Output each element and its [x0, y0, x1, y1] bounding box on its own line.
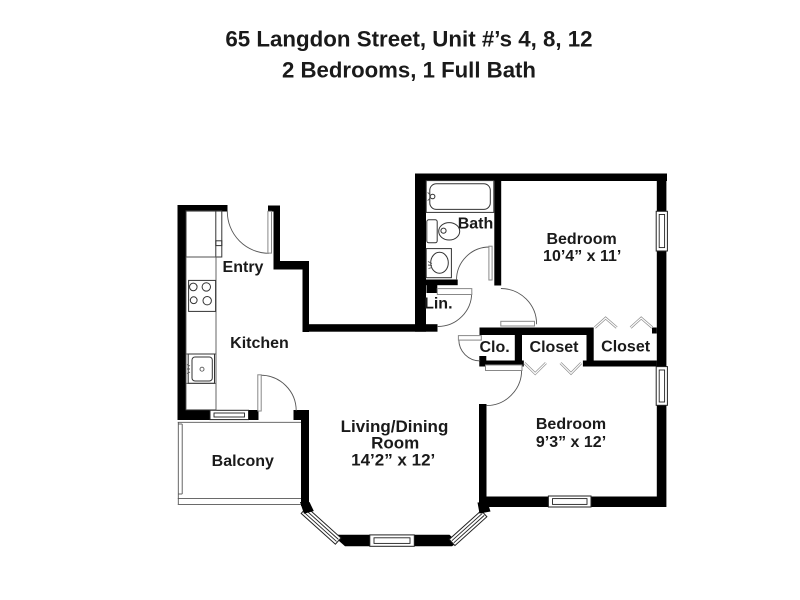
- svg-text:10’4” x 11’: 10’4” x 11’: [543, 248, 621, 265]
- svg-text:Lin.: Lin.: [424, 295, 452, 312]
- svg-text:Clo.: Clo.: [479, 339, 509, 356]
- svg-text:Bedroom: Bedroom: [536, 416, 606, 433]
- svg-text:9’3” x 12’: 9’3” x 12’: [536, 434, 606, 451]
- svg-text:Balcony: Balcony: [212, 453, 274, 470]
- svg-text:Closet: Closet: [530, 339, 580, 356]
- svg-text:65 Langdon Street, Unit #’s 4,: 65 Langdon Street, Unit #’s 4, 8, 12: [225, 27, 592, 52]
- svg-text:Bath: Bath: [458, 216, 494, 233]
- svg-text:2 Bedrooms, 1 Full Bath: 2 Bedrooms, 1 Full Bath: [282, 58, 536, 83]
- svg-text:Closet: Closet: [601, 339, 651, 356]
- svg-text:14’2” x 12’: 14’2” x 12’: [351, 451, 435, 470]
- svg-text:Entry: Entry: [223, 259, 264, 276]
- svg-text:Bedroom: Bedroom: [546, 231, 616, 248]
- svg-text:Kitchen: Kitchen: [230, 335, 289, 352]
